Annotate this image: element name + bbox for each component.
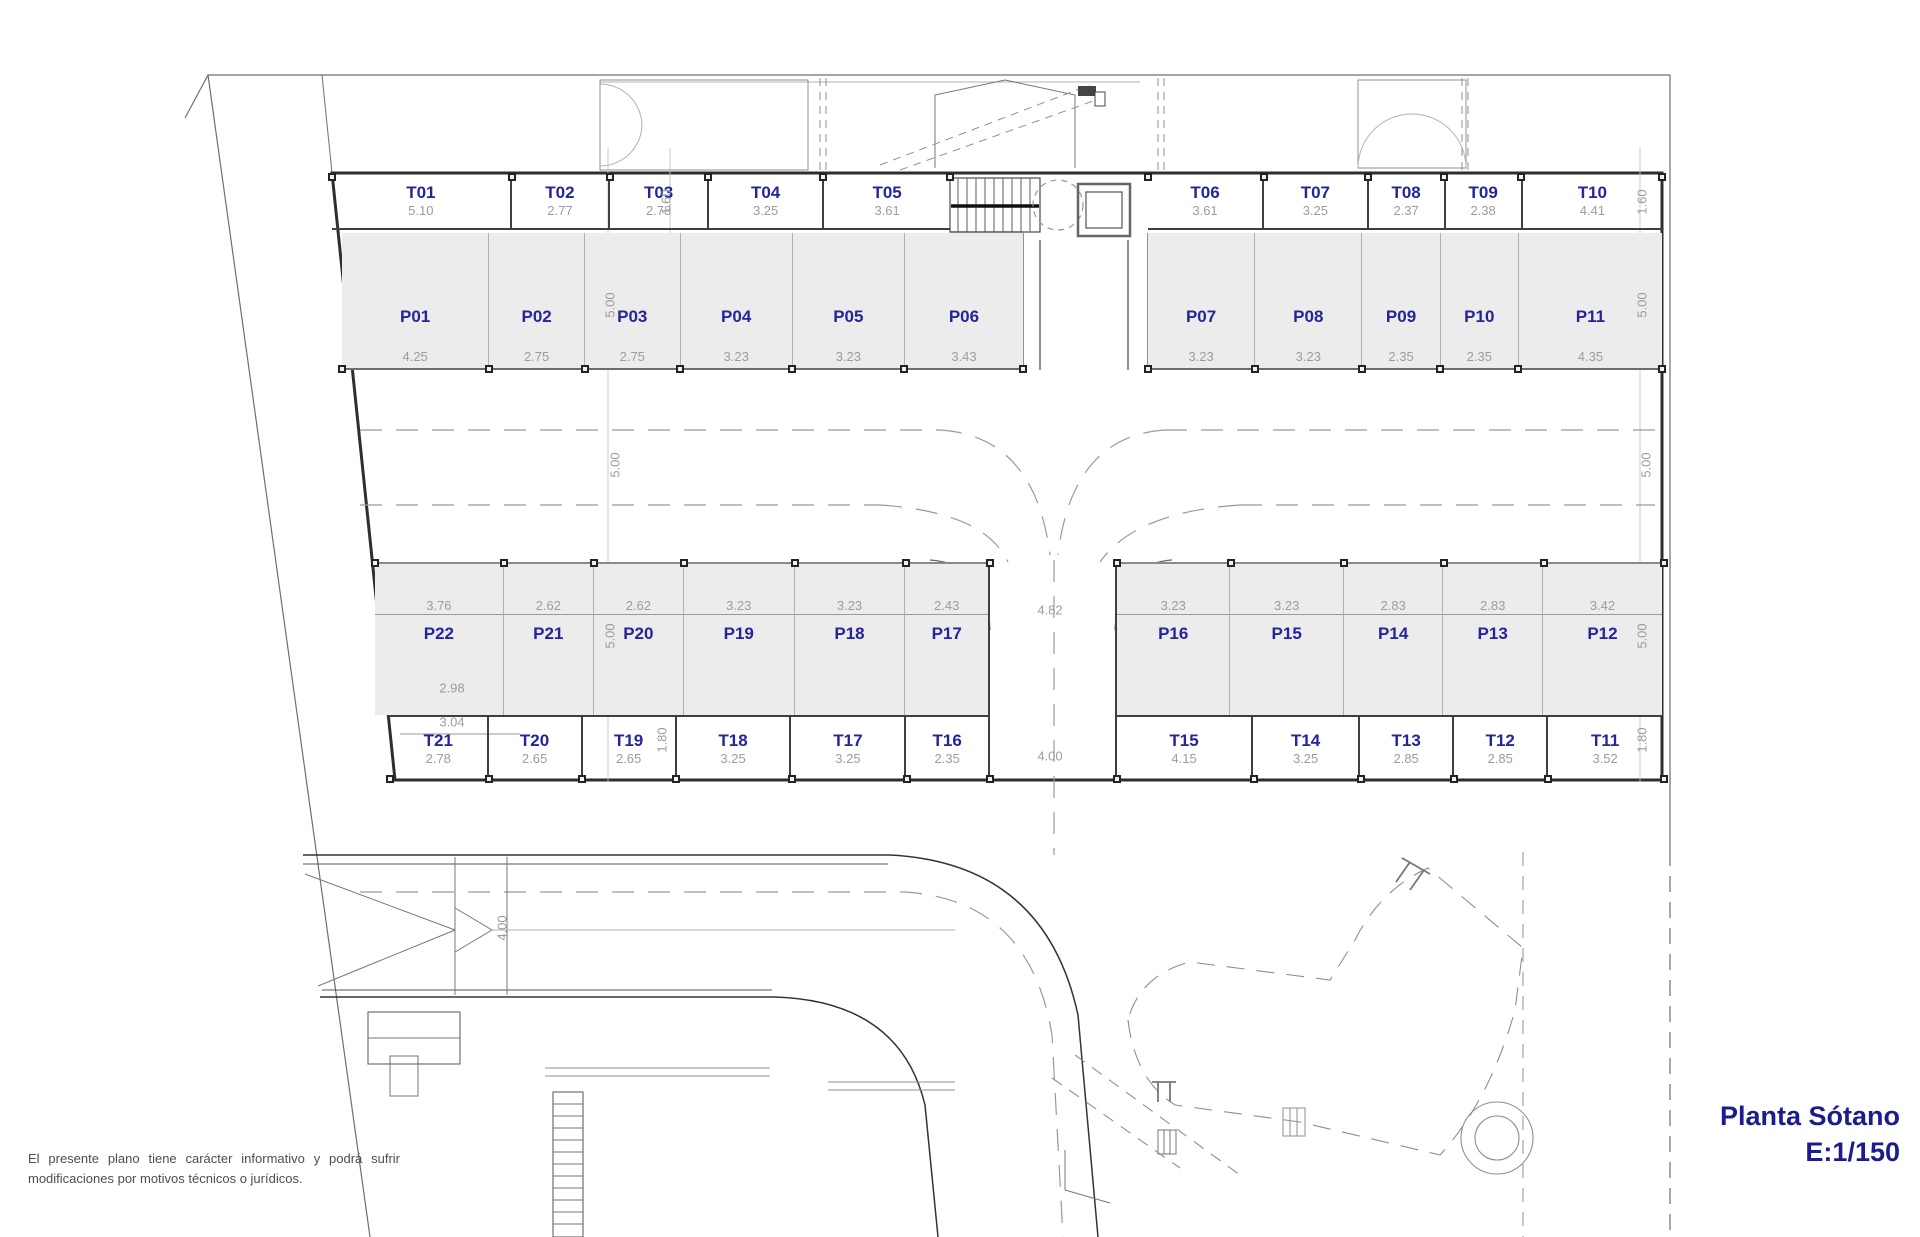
unit-label: P07 (1148, 307, 1254, 327)
unit-label: T13 (1360, 731, 1452, 751)
unit-label: T17 (791, 731, 904, 751)
unit-label: P02 (489, 307, 584, 327)
unit-dimension: 3.23 (1148, 349, 1254, 364)
row-top_parking_left: P014.25P022.75P032.75P043.23P053.23P063.… (342, 233, 1023, 370)
unit-dimension: 2.75 (489, 349, 584, 364)
unit-T05: T053.61 (822, 178, 950, 228)
unit-T07: T073.25 (1262, 178, 1367, 228)
unit-dimension: 2.35 (1441, 349, 1518, 364)
wall-post (1019, 365, 1027, 373)
wall-post (1144, 365, 1152, 373)
unit-label: P10 (1441, 307, 1518, 327)
unit-P15: 3.23P15 (1229, 564, 1342, 715)
wall-post (1227, 559, 1235, 567)
unit-dimension: 4.15 (1117, 751, 1251, 766)
unit-label: T20 (489, 731, 581, 751)
wall-post (371, 559, 379, 567)
unit-P09: P092.35 (1361, 233, 1439, 368)
wall-post (903, 775, 911, 783)
wall-post (788, 775, 796, 783)
unit-label: T08 (1369, 183, 1444, 203)
wall-post (590, 559, 598, 567)
wall-post (606, 173, 614, 181)
unit-T02: T022.77 (510, 178, 609, 228)
unit-T08: T082.37 (1367, 178, 1444, 228)
dim-label-h400c: 4.00 (1037, 749, 1062, 764)
wall-post (788, 365, 796, 373)
unit-dimension: 2.35 (1362, 349, 1439, 364)
unit-P19: 3.23P19 (683, 564, 794, 715)
unit-dimension: 3.23 (793, 349, 904, 364)
wall-post (485, 775, 493, 783)
dim-label-v160l: 1.60 (659, 189, 674, 214)
unit-dimension: 2.83 (1344, 564, 1443, 615)
wall-post (672, 775, 680, 783)
unit-T09: T092.38 (1444, 178, 1521, 228)
wall-post (1517, 173, 1525, 181)
wall-post (1660, 559, 1668, 567)
wall-post (1364, 173, 1372, 181)
wall-post (900, 365, 908, 373)
unit-T16: T162.35 (904, 717, 988, 778)
unit-T06: T063.61 (1148, 178, 1262, 228)
wall-post (386, 775, 394, 783)
unit-dimension: 3.76 (375, 564, 503, 615)
wall-post (676, 365, 684, 373)
dim-label-v500ar: 5.00 (1639, 452, 1654, 477)
unit-T13: T132.85 (1358, 717, 1452, 778)
wall-post (1260, 173, 1268, 181)
unit-dimension: 3.25 (1253, 751, 1358, 766)
unit-label: P09 (1362, 307, 1439, 327)
unit-label: T14 (1253, 731, 1358, 751)
wall-post (1251, 365, 1259, 373)
wall-post (1514, 365, 1522, 373)
unit-dimension: 2.83 (1443, 564, 1542, 615)
wall-post (1450, 775, 1458, 783)
unit-dimension: 2.37 (1369, 203, 1444, 218)
plan-title: Planta Sótano (1720, 1098, 1900, 1134)
unit-P21: 2.62P21 (503, 564, 593, 715)
unit-dimension: 2.65 (583, 751, 675, 766)
unit-dimension: 2.35 (906, 751, 988, 766)
wall-post (1113, 559, 1121, 567)
dim-label-v500tl: 5.00 (603, 292, 618, 317)
unit-dimension: 2.78 (390, 751, 487, 766)
wall-post (578, 775, 586, 783)
wall-post (791, 559, 799, 567)
unit-label: P06 (905, 307, 1023, 327)
row-bot_storage_right: T154.15T143.25T132.85T122.85T113.52 (1115, 715, 1662, 778)
unit-dimension: 3.23 (681, 349, 792, 364)
unit-dimension: 3.42 (1543, 564, 1662, 615)
unit-label: P04 (681, 307, 792, 327)
unit-label: P05 (793, 307, 904, 327)
unit-label: P21 (504, 624, 593, 644)
dim-label-v500tr: 5.00 (1635, 292, 1650, 317)
dim-label-v180r: 1.80 (1635, 727, 1650, 752)
wall-post (485, 365, 493, 373)
unit-dimension: 3.52 (1548, 751, 1662, 766)
wall-post (1440, 559, 1448, 567)
unit-dimension: 3.23 (795, 564, 905, 615)
unit-label: P14 (1344, 624, 1443, 644)
unit-P14: 2.83P14 (1343, 564, 1443, 715)
unit-dimension: 2.43 (905, 564, 988, 615)
unit-dimension: 4.25 (342, 349, 488, 364)
wall-post (1544, 775, 1552, 783)
wall-post (704, 173, 712, 181)
wall-post (902, 559, 910, 567)
unit-T04: T043.25 (707, 178, 822, 228)
unit-dimension: 3.25 (791, 751, 904, 766)
wall-post (338, 365, 346, 373)
unit-P10: P102.35 (1440, 233, 1518, 368)
unit-P05: P053.23 (792, 233, 904, 368)
wall-post (500, 559, 508, 567)
unit-dimension: 3.23 (1255, 349, 1361, 364)
wall-post (1540, 559, 1548, 567)
unit-label: P18 (795, 624, 905, 644)
unit-label: P15 (1230, 624, 1342, 644)
wall-post (508, 173, 516, 181)
unit-label: T16 (906, 731, 988, 751)
unit-T12: T122.85 (1452, 717, 1546, 778)
unit-label: T04 (709, 183, 822, 203)
unit-P03: P032.75 (584, 233, 680, 368)
wall-post (1436, 365, 1444, 373)
unit-dimension: 3.23 (1117, 564, 1229, 615)
unit-dimension: 2.62 (594, 564, 683, 615)
dim-label-v160r: 1.60 (1635, 189, 1650, 214)
unit-label: T18 (677, 731, 790, 751)
unit-P08: P083.23 (1254, 233, 1361, 368)
wall-post (1658, 173, 1666, 181)
dim-label-v500mr: 5.00 (1635, 623, 1650, 648)
unit-P07: P073.23 (1148, 233, 1254, 368)
unit-dimension: 2.77 (512, 203, 609, 218)
unit-label: P13 (1443, 624, 1542, 644)
dim-label-h482: 4.82 (1037, 603, 1062, 618)
unit-dimension: 3.43 (905, 349, 1023, 364)
dim-label-v400ramp: 4.00 (495, 915, 510, 940)
unit-dimension: 5.10 (332, 203, 510, 218)
wall-post (1250, 775, 1258, 783)
unit-label: T02 (512, 183, 609, 203)
unit-P06: P063.43 (904, 233, 1023, 368)
row-mid_parking_right: 3.23P163.23P152.83P142.83P133.42P12 (1115, 562, 1662, 715)
unit-T21: T212.78 (390, 717, 487, 778)
unit-T15: T154.15 (1117, 717, 1251, 778)
wall-post (986, 559, 994, 567)
unit-P01: P014.25 (342, 233, 488, 368)
unit-label: P01 (342, 307, 488, 327)
wall-post (946, 173, 954, 181)
wall-post (680, 559, 688, 567)
row-bot_storage_left: T212.78T202.65T192.65T183.25T173.25T162.… (390, 715, 990, 778)
unit-dimension: 3.23 (1230, 564, 1342, 615)
title-block: Planta Sótano E:1/150 (1720, 1098, 1900, 1171)
wall-post (1357, 775, 1365, 783)
wall-post (1660, 775, 1668, 783)
unit-dimension: 2.75 (585, 349, 680, 364)
unit-dimension: 3.25 (1264, 203, 1367, 218)
dim-label-h304: 3.04 (439, 715, 464, 730)
unit-T17: T173.25 (789, 717, 904, 778)
unit-P13: 2.83P13 (1442, 564, 1542, 715)
unit-rows: T015.10T022.77T032.78T043.25T053.61T063.… (0, 0, 1920, 1237)
unit-label: T09 (1446, 183, 1521, 203)
wall-post (819, 173, 827, 181)
unit-label: P16 (1117, 624, 1229, 644)
row-top_storage_right: T063.61T073.25T082.37T092.38T104.41 (1148, 178, 1662, 230)
unit-dimension: 3.23 (684, 564, 794, 615)
unit-dimension: 2.62 (504, 564, 593, 615)
disclaimer-note: El presente plano tiene carácter informa… (28, 1149, 400, 1189)
plan-scale: E:1/150 (1720, 1134, 1900, 1170)
unit-label: T05 (824, 183, 950, 203)
dim-label-v500al: 5.00 (608, 452, 623, 477)
unit-dimension: 2.85 (1454, 751, 1546, 766)
unit-T01: T015.10 (332, 178, 510, 228)
unit-dimension: 3.61 (1148, 203, 1262, 218)
wall-post (986, 775, 994, 783)
unit-P17: 2.43P17 (904, 564, 988, 715)
unit-dimension: 2.85 (1360, 751, 1452, 766)
unit-P18: 3.23P18 (794, 564, 905, 715)
unit-dimension: 3.25 (677, 751, 790, 766)
unit-dimension: 2.65 (489, 751, 581, 766)
wall-post (581, 365, 589, 373)
unit-dimension: 4.35 (1519, 349, 1662, 364)
wall-post (1440, 173, 1448, 181)
unit-label: T15 (1117, 731, 1251, 751)
unit-T20: T202.65 (487, 717, 581, 778)
dim-label-h298: 2.98 (439, 681, 464, 696)
unit-P04: P043.23 (680, 233, 792, 368)
unit-label: T07 (1264, 183, 1367, 203)
unit-label: T12 (1454, 731, 1546, 751)
wall-post (1113, 775, 1121, 783)
unit-T14: T143.25 (1251, 717, 1358, 778)
row-top_storage_left: T015.10T022.77T032.78T043.25T053.61 (332, 178, 950, 230)
row-top_parking_right: P073.23P083.23P092.35P102.35P114.35 (1148, 233, 1662, 370)
unit-dimension: 3.25 (709, 203, 822, 218)
unit-dimension: 3.61 (824, 203, 950, 218)
unit-P16: 3.23P16 (1117, 564, 1229, 715)
wall-post (1144, 173, 1152, 181)
wall-post (328, 173, 336, 181)
dim-label-v180l: 1.80 (655, 727, 670, 752)
wall-post (1658, 365, 1666, 373)
unit-label: P17 (905, 624, 988, 644)
unit-P02: P022.75 (488, 233, 584, 368)
unit-label: T21 (390, 731, 487, 751)
wall-post (1340, 559, 1348, 567)
wall-post (1358, 365, 1366, 373)
unit-label: P03 (585, 307, 680, 327)
unit-T18: T183.25 (675, 717, 790, 778)
dim-label-v500ml: 5.00 (603, 623, 618, 648)
unit-label: T01 (332, 183, 510, 203)
unit-dimension: 2.38 (1446, 203, 1521, 218)
unit-label: P08 (1255, 307, 1361, 327)
unit-label: T06 (1148, 183, 1262, 203)
unit-label: P22 (375, 624, 503, 644)
row-mid_parking_left: 3.76P222.62P212.62P203.23P193.23P182.43P… (375, 562, 990, 715)
floor-plan-page: T015.10T022.77T032.78T043.25T053.61T063.… (0, 0, 1920, 1237)
unit-label: P19 (684, 624, 794, 644)
